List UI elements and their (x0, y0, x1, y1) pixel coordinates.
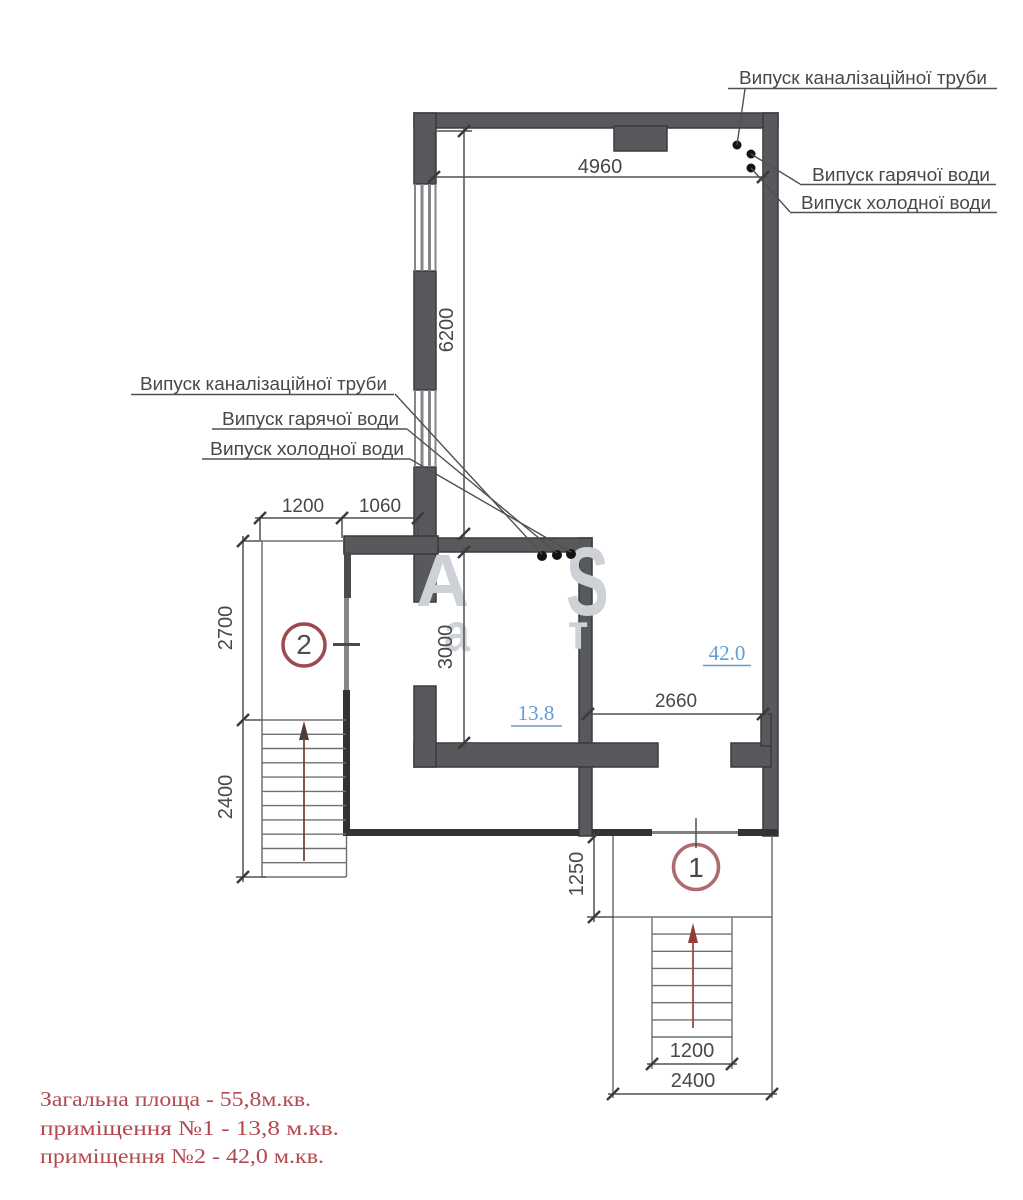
svg-text:приміщення №2 - 42,0 м.кв.: приміщення №2 - 42,0 м.кв. (40, 1144, 324, 1168)
svg-text:13.8: 13.8 (518, 701, 555, 725)
svg-text:1060: 1060 (359, 496, 401, 517)
svg-text:3000: 3000 (435, 625, 457, 670)
svg-text:1250: 1250 (566, 852, 588, 897)
svg-text:Випуск гарячої води: Випуск гарячої води (222, 409, 399, 429)
svg-text:приміщення №1 - 13,8 м.кв.: приміщення №1 - 13,8 м.кв. (40, 1116, 339, 1140)
svg-text:2400: 2400 (671, 1070, 716, 1092)
svg-text:2: 2 (296, 629, 312, 660)
svg-text:2660: 2660 (655, 691, 697, 712)
svg-text:1200: 1200 (282, 496, 324, 517)
svg-text:1200: 1200 (670, 1040, 715, 1062)
svg-text:т: т (568, 603, 588, 660)
svg-text:2400: 2400 (215, 775, 237, 820)
svg-text:Випуск гарячої води: Випуск гарячої води (812, 165, 990, 185)
svg-text:42.0: 42.0 (709, 641, 746, 665)
svg-text:Випуск холодної води: Випуск холодної води (801, 193, 991, 213)
svg-text:Випуск каналізаційної труби: Випуск каналізаційної труби (140, 374, 387, 394)
svg-text:6200: 6200 (436, 308, 458, 353)
svg-text:2700: 2700 (215, 606, 237, 651)
svg-text:Випуск каналізаційної труби: Випуск каналізаційної труби (739, 68, 987, 88)
svg-text:4960: 4960 (578, 156, 623, 178)
svg-text:Загальна площа - 55,8м.кв.: Загальна площа - 55,8м.кв. (40, 1087, 311, 1111)
svg-text:1: 1 (688, 852, 704, 883)
svg-text:Випуск холодної води: Випуск холодної води (210, 439, 404, 459)
